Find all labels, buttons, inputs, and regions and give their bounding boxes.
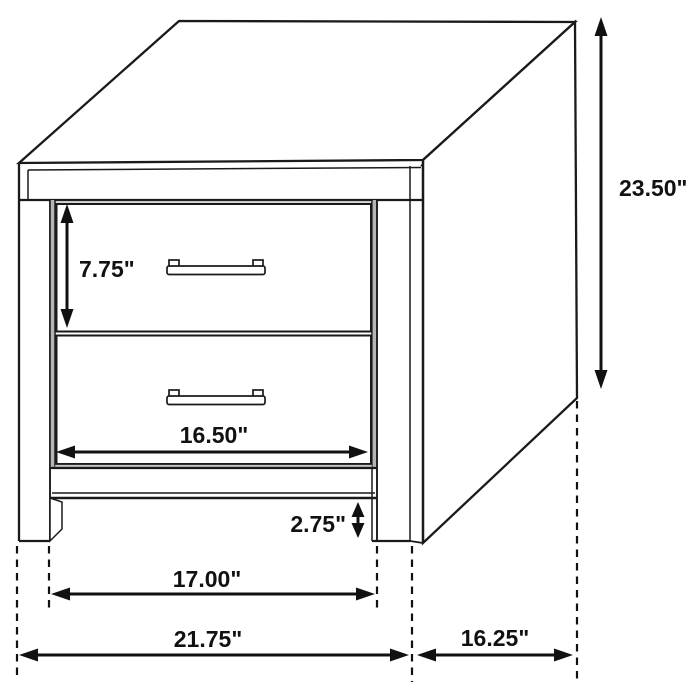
dimension-label-drawer-height: 7.75" [79,256,135,282]
bottom-rail [50,465,377,498]
dimension-base-clearance: 2.75" [290,502,364,538]
dimension-label-leg-inner-span: 17.00" [173,566,241,592]
dimension-label-base-clearance: 2.75" [290,511,346,537]
nightstand-dimension-diagram: 7.75" 23.50" 16.50" 2.75" 17.00" 21.75" [0,0,700,700]
dimension-overall-depth: 16.25" [417,625,573,662]
dimension-label-overall-depth: 16.25" [461,625,529,651]
dimension-label-overall-width: 21.75" [174,626,242,652]
dimension-label-drawer-width: 16.50" [180,422,248,448]
dimension-overall-width: 21.75" [19,626,409,662]
dimension-leg-inner-span: 17.00" [51,566,375,601]
dimension-label-overall-height: 23.50" [619,175,687,201]
diagram-canvas: 7.75" 23.50" 16.50" 2.75" 17.00" 21.75" [0,0,700,700]
dimension-overall-height: 23.50" [595,17,688,389]
front-legs [19,498,423,543]
